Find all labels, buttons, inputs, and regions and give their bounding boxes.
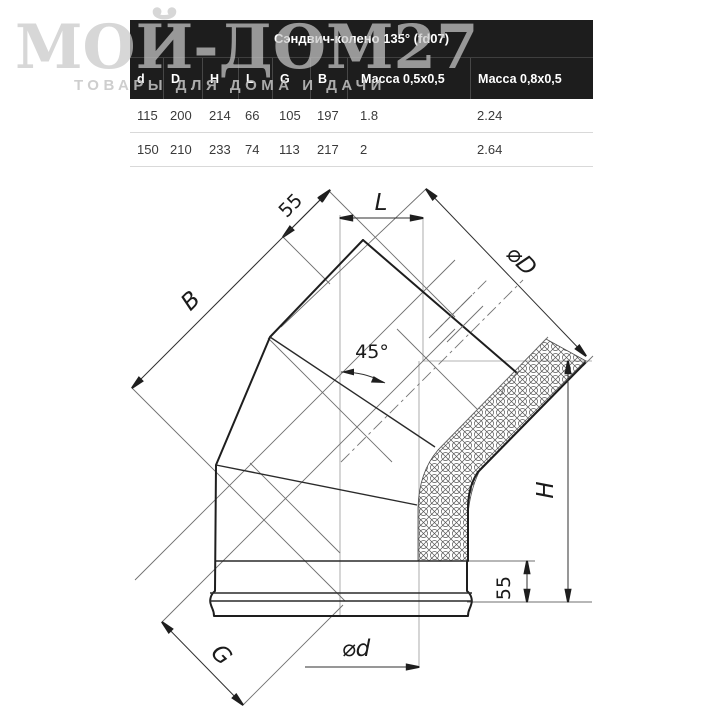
data-cell: 210 — [163, 133, 202, 166]
data-cell: 150 — [130, 133, 163, 166]
data-cell: 197 — [310, 99, 347, 132]
insulation-hatch — [418, 339, 586, 561]
label-width-g: G — [205, 640, 236, 671]
label-width-b: B — [176, 286, 206, 316]
page: { "watermark": { "title": "МОЙ-ДОМ27", "… — [0, 0, 728, 728]
header-cell: B — [310, 58, 347, 99]
header-cell: Масса 0,8x0,5 — [470, 58, 593, 99]
label-outer-diameter: ⌀D — [501, 241, 542, 282]
data-cell: 2.24 — [470, 99, 593, 132]
header-cell: d — [130, 58, 163, 99]
header-cell: L — [238, 58, 272, 99]
label-angle: 45° — [355, 341, 389, 363]
spec-table: Сэндвич-колено 135° (fd07) dDHLGBМасса 0… — [130, 20, 593, 167]
data-cell: 115 — [130, 99, 163, 132]
data-cell: 2.64 — [470, 133, 593, 166]
data-cell: 2 — [347, 133, 470, 166]
data-cell: 113 — [272, 133, 310, 166]
data-cell: 105 — [272, 99, 310, 132]
header-cell: G — [272, 58, 310, 99]
data-cell: 217 — [310, 133, 347, 166]
header-cell: Масса 0,5x0,5 — [347, 58, 470, 99]
table-row: 115200214661051971.82.24 — [130, 99, 593, 133]
table-body: 115200214661051971.82.241502102337411321… — [130, 99, 593, 167]
data-cell: 1.8 — [347, 99, 470, 132]
label-inner-diameter: ⌀d — [342, 636, 371, 662]
label-height-h: H — [533, 481, 559, 498]
header-cell: D — [163, 58, 202, 99]
label-length-l: L — [375, 190, 388, 216]
data-cell: 200 — [163, 99, 202, 132]
data-cell: 74 — [238, 133, 272, 166]
table-title: Сэндвич-колено 135° (fd07) — [130, 20, 593, 58]
header-cell: H — [202, 58, 238, 99]
data-cell: 214 — [202, 99, 238, 132]
data-cell: 233 — [202, 133, 238, 166]
table-row: 1502102337411321722.64 — [130, 133, 593, 167]
table-header-row: dDHLGBМасса 0,5x0,5Масса 0,8x0,5 — [130, 58, 593, 99]
label-socket-bottom: 55 — [493, 576, 515, 600]
data-cell: 66 — [238, 99, 272, 132]
